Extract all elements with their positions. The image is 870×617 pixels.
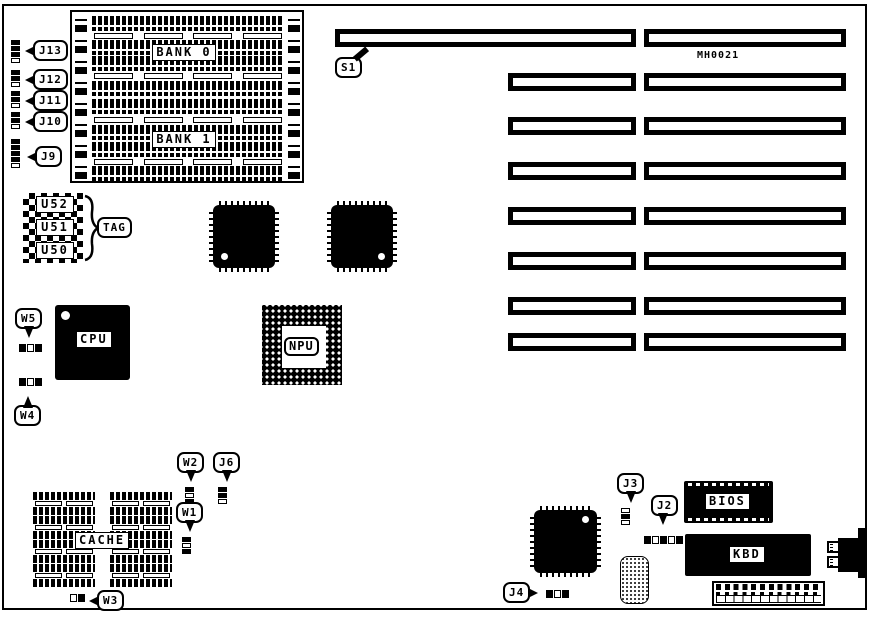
cpu-label: CPU [76, 331, 112, 348]
chip-pins [688, 518, 769, 521]
expansion-slot [644, 333, 846, 351]
chip-pins [33, 507, 95, 515]
chip-row [33, 524, 95, 531]
cache-chip [33, 492, 95, 515]
pin [11, 139, 20, 144]
callout-w2: W2 [177, 452, 204, 473]
chip-window [193, 73, 232, 79]
pin [11, 157, 20, 162]
cache-label: CACHE [75, 532, 129, 549]
pin [35, 378, 42, 386]
pin [11, 76, 20, 81]
pin [182, 537, 191, 542]
pin [562, 590, 569, 598]
callout-j10: J10 [33, 111, 68, 132]
expansion-slot [644, 117, 846, 135]
chip-window [94, 117, 133, 123]
pin1-dot [378, 253, 385, 260]
jumper-w3 [70, 594, 85, 602]
chip-pins [110, 507, 172, 515]
callout-j12: J12 [33, 69, 68, 90]
jumper-j11 [11, 91, 20, 108]
pin [621, 514, 630, 519]
chip-row [110, 548, 172, 555]
jumper-j10 [11, 112, 20, 129]
chip-window [243, 73, 282, 79]
jumper-w5 [19, 344, 42, 352]
callout-tail [25, 96, 35, 106]
simm-chip-row [94, 158, 282, 166]
chip-pins [33, 579, 95, 587]
chip-pins [33, 564, 95, 572]
expansion-slot [508, 73, 636, 91]
kbd-label: KBD [729, 546, 765, 563]
callout-tail [186, 470, 196, 482]
callout-tail [25, 75, 35, 85]
chip-window [144, 117, 183, 123]
chip-pins [219, 201, 269, 205]
jumper-j4 [546, 590, 569, 598]
chip-window [144, 159, 183, 165]
chip-pins [33, 516, 95, 524]
npu-socket: NPU [262, 305, 342, 385]
callout-tail [528, 588, 538, 598]
jumper-j3 [621, 508, 630, 525]
chip-row [110, 524, 172, 531]
chip-window [243, 33, 282, 39]
keyboard-din-connector-body [858, 528, 867, 578]
pin [11, 145, 20, 150]
callout-w4: W4 [14, 405, 41, 426]
expansion-slot [508, 297, 636, 315]
pin [19, 378, 26, 386]
chip-pins [337, 268, 387, 272]
u50-label: U50 [36, 242, 74, 259]
callout-tail [658, 513, 668, 525]
pin [78, 594, 85, 602]
pin [70, 594, 77, 602]
chip-window [112, 549, 138, 554]
chip-row [33, 548, 95, 555]
board-id: MH0021 [697, 50, 739, 61]
callout-w1: W1 [176, 502, 203, 523]
chip-window [193, 117, 232, 123]
din-connector-tab [827, 541, 840, 553]
crystal-component [620, 556, 649, 604]
chip-pins [219, 268, 269, 272]
pin [11, 46, 20, 51]
din-connector-tab [827, 556, 840, 568]
callout-tail [27, 152, 37, 162]
callout-j2: J2 [651, 495, 678, 516]
pin [660, 536, 667, 544]
chip-pins [597, 516, 601, 567]
jumper-j12 [11, 70, 20, 87]
pin [676, 536, 683, 544]
chip-pins [540, 573, 591, 577]
pin1-dot [61, 311, 70, 320]
connector-sockets [716, 595, 821, 603]
pin [218, 493, 227, 498]
jumper-j2 [644, 536, 683, 544]
chip-pins [110, 516, 172, 524]
pin [35, 344, 42, 352]
pin [644, 536, 651, 544]
pin [546, 590, 553, 598]
keyboard-din-connector [838, 538, 860, 572]
chip-window [35, 525, 61, 530]
simm-latch-column-right [288, 14, 300, 179]
callout-w3: W3 [97, 590, 124, 611]
pin1-dot [582, 516, 589, 523]
bios-chip: BIOS [684, 481, 773, 523]
bios-label: BIOS [705, 493, 750, 510]
pin [11, 40, 20, 45]
expansion-slot [644, 29, 846, 47]
pin [182, 543, 191, 548]
callout-tail [626, 491, 636, 503]
pin [11, 151, 20, 156]
motherboard-diagram: BANK 0 BANK 1 J13 J12 J11 J10 J9 U52 U51… [0, 0, 870, 617]
pin [185, 487, 194, 492]
callout-j6: J6 [213, 452, 240, 473]
jumper-j9 [11, 139, 20, 168]
callout-tail [23, 396, 33, 408]
simm-chip-row [94, 116, 282, 124]
pin [218, 487, 227, 492]
pin [27, 378, 34, 386]
chip-window [35, 501, 61, 506]
chip-window [243, 159, 282, 165]
npu-label: NPU [284, 337, 319, 356]
chip-window [94, 33, 133, 39]
chip-window [35, 549, 61, 554]
callout-w5: W5 [15, 308, 42, 329]
expansion-slot [644, 162, 846, 180]
pin [11, 52, 20, 57]
chip-window [66, 573, 92, 578]
callout-tag: TAG [97, 217, 132, 238]
u51-label: U51 [36, 219, 74, 236]
callout-j9: J9 [35, 146, 62, 167]
chip-pins [209, 211, 213, 262]
chip-pins [530, 516, 534, 567]
chip-window [66, 501, 92, 506]
chip-window [143, 501, 169, 506]
chip-window [143, 549, 169, 554]
qfp-chip [534, 510, 597, 573]
expansion-slot [644, 252, 846, 270]
cache-chip [33, 564, 95, 587]
pin [11, 163, 20, 168]
chip-window [144, 73, 183, 79]
pin [182, 549, 191, 554]
expansion-slot-s1 [335, 29, 636, 47]
cache-chip [110, 492, 172, 515]
chip-pins [33, 492, 95, 500]
chip-window [66, 525, 92, 530]
callout-j4: J4 [503, 582, 530, 603]
pin [668, 536, 675, 544]
bank1-label: BANK 1 [152, 131, 216, 148]
expansion-slot [508, 252, 636, 270]
chip-pins [688, 483, 769, 486]
pin [652, 536, 659, 544]
expansion-slot [508, 333, 636, 351]
pin [621, 508, 630, 513]
expansion-slot [644, 73, 846, 91]
chip-pins [110, 579, 172, 587]
chip-pins [110, 492, 172, 500]
pin [218, 499, 227, 504]
chip-window [193, 159, 232, 165]
chip-window [94, 73, 133, 79]
chip-window [112, 573, 138, 578]
pin-header-connector [712, 581, 825, 606]
callout-tail [25, 117, 35, 127]
chip-window [112, 525, 138, 530]
pin [11, 58, 20, 63]
expansion-slot [508, 162, 636, 180]
chip-window [94, 159, 133, 165]
chip-pins [110, 555, 172, 563]
pin1-dot [221, 253, 228, 260]
chip-window [112, 501, 138, 506]
chip-pins [337, 201, 387, 205]
simm-socket [92, 166, 284, 181]
bank0-label: BANK 0 [152, 44, 216, 61]
chip-row [33, 572, 95, 579]
callout-tail [25, 46, 35, 56]
pin [11, 112, 20, 117]
chip-window [66, 549, 92, 554]
expansion-slot [644, 297, 846, 315]
cache-chip [110, 564, 172, 587]
qfp-chip [213, 205, 275, 268]
expansion-slot [508, 207, 636, 225]
pin [11, 82, 20, 87]
simm-socket [92, 81, 284, 96]
callout-tail [89, 596, 99, 606]
kbd-chip: KBD [685, 534, 811, 576]
simm-socket [92, 99, 284, 114]
chip-pins [33, 555, 95, 563]
chip-window [35, 573, 61, 578]
connector-pins [716, 584, 821, 590]
chip-window [243, 117, 282, 123]
chip-pins [275, 211, 279, 262]
chip-pins [540, 506, 591, 510]
pin [11, 103, 20, 108]
pin [185, 493, 194, 498]
jumper-w4 [19, 378, 42, 386]
jumper-j6 [218, 487, 227, 504]
pin [554, 590, 561, 598]
pin [11, 70, 20, 75]
pin [19, 344, 26, 352]
callout-s1: S1 [335, 57, 362, 78]
chip-row [110, 572, 172, 579]
callout-j11: J11 [33, 90, 68, 111]
chip-row [110, 500, 172, 507]
chip-pins [327, 211, 331, 262]
pin [11, 124, 20, 129]
chip-window [144, 33, 183, 39]
pin [621, 520, 630, 525]
expansion-slot [644, 207, 846, 225]
chip-row [33, 500, 95, 507]
pin [11, 97, 20, 102]
u52-label: U52 [36, 196, 74, 213]
chip-window [143, 525, 169, 530]
callout-tail [185, 520, 195, 532]
chip-pins [110, 564, 172, 572]
simm-latch-column-left [75, 14, 87, 179]
jumper-j13 [11, 40, 20, 63]
simm-memory-module: BANK 0 BANK 1 [70, 10, 304, 183]
pin [11, 91, 20, 96]
simm-chip-row [94, 72, 282, 80]
simm-chip-row [94, 32, 282, 40]
cpu-chip: CPU [55, 305, 130, 380]
pin [27, 344, 34, 352]
chip-window [193, 33, 232, 39]
expansion-slot [508, 117, 636, 135]
callout-tail [222, 470, 232, 482]
chip-window [143, 573, 169, 578]
qfp-chip [331, 205, 393, 268]
callout-j13: J13 [33, 40, 68, 61]
callout-tail [24, 326, 34, 338]
pin [11, 118, 20, 123]
simm-socket [92, 16, 284, 31]
callout-j3: J3 [617, 473, 644, 494]
chip-pins [393, 211, 397, 262]
jumper-w1 [182, 537, 191, 554]
